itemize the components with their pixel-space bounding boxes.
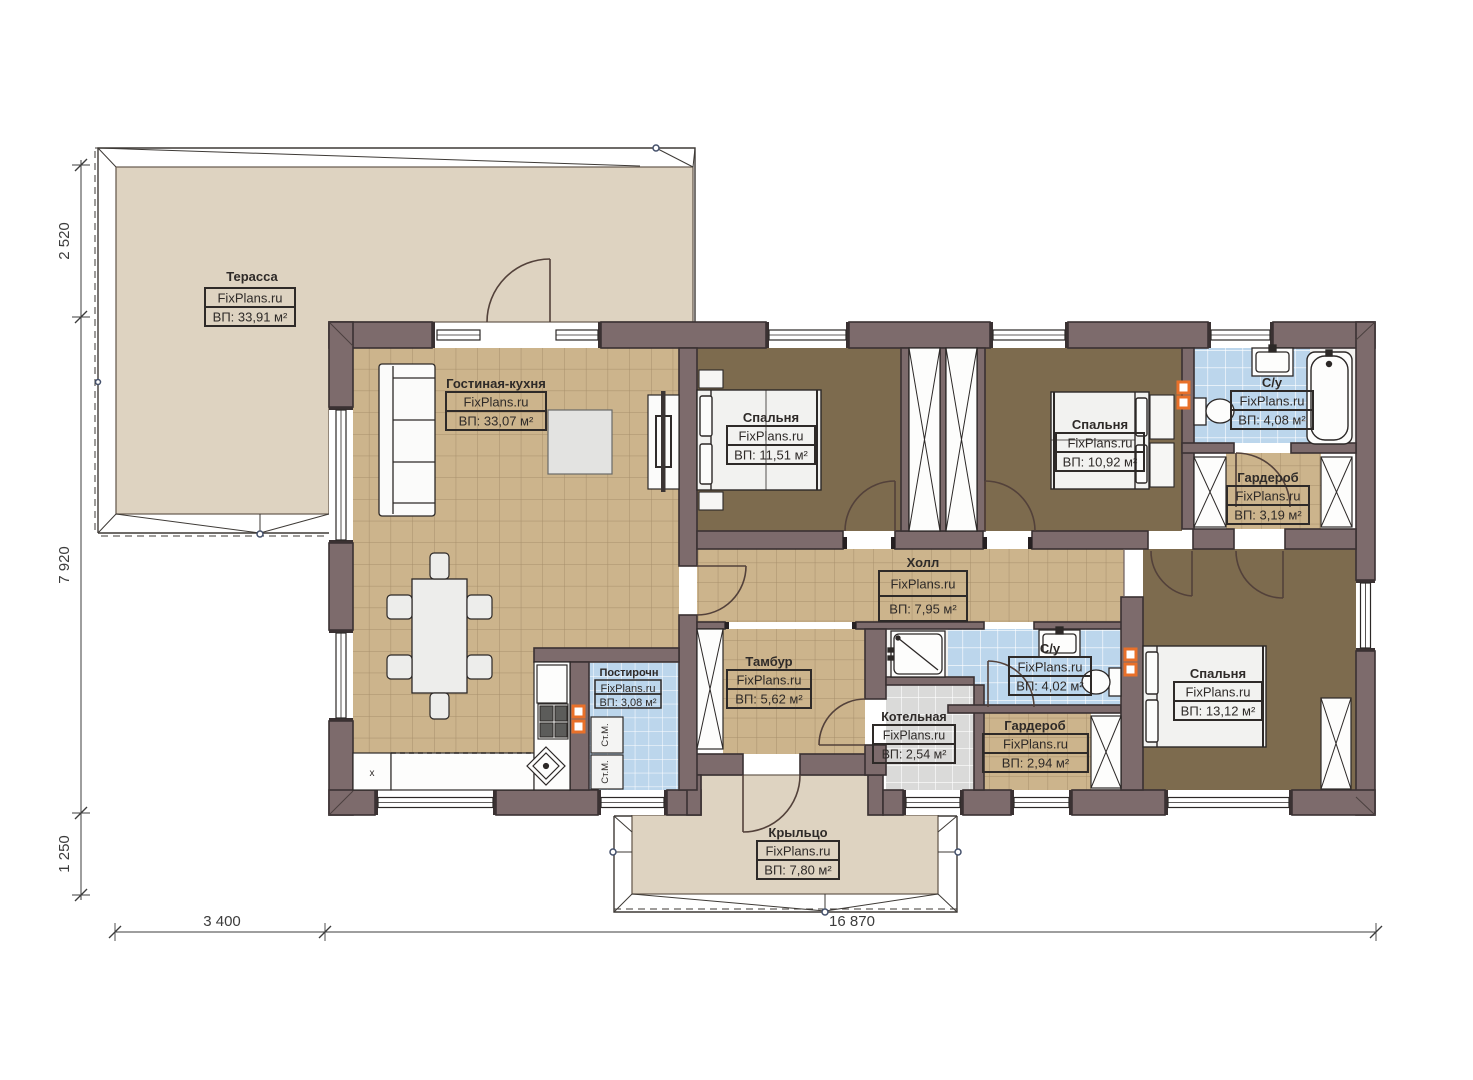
svg-text:ВП: 33,91 м²: ВП: 33,91 м² — [213, 310, 288, 325]
svg-text:FixPlans.ru: FixPlans.ru — [890, 577, 955, 592]
svg-text:ВП: 3,08 м²: ВП: 3,08 м² — [599, 697, 656, 709]
svg-text:Терасса: Терасса — [226, 269, 278, 284]
svg-text:ВП: 33,07 м²: ВП: 33,07 м² — [459, 414, 534, 429]
svg-text:FixPlans.ru: FixPlans.ru — [1003, 737, 1068, 752]
svg-text:Спальня: Спальня — [1190, 666, 1246, 681]
svg-text:Холл: Холл — [907, 555, 940, 570]
svg-text:ВП: 13,12 м²: ВП: 13,12 м² — [1181, 704, 1256, 719]
svg-text:С/у: С/у — [1040, 641, 1061, 656]
svg-text:Спальня: Спальня — [743, 410, 799, 425]
svg-text:FixPlans.ru: FixPlans.ru — [1017, 660, 1082, 675]
svg-text:FixPlans.ru: FixPlans.ru — [736, 673, 801, 688]
svg-text:7 920: 7 920 — [56, 546, 73, 584]
svg-text:FixPlans.ru: FixPlans.ru — [738, 429, 803, 444]
svg-text:FixPlans.ru: FixPlans.ru — [1239, 394, 1304, 409]
svg-text:FixPlans.ru: FixPlans.ru — [1235, 489, 1300, 504]
svg-text:ВП: 3,19 м²: ВП: 3,19 м² — [1234, 508, 1302, 523]
svg-text:Постирочн: Постирочн — [600, 667, 659, 679]
svg-text:FixPlans.ru: FixPlans.ru — [600, 683, 655, 695]
svg-text:16 870: 16 870 — [829, 913, 875, 930]
svg-text:ВП: 2,94 м²: ВП: 2,94 м² — [1002, 756, 1070, 771]
svg-text:Ст.М.: Ст.М. — [600, 760, 611, 783]
svg-text:Гостиная-кухня: Гостиная-кухня — [446, 376, 546, 391]
svg-text:Гардероб: Гардероб — [1004, 718, 1065, 733]
svg-text:FixPlans.ru: FixPlans.ru — [1185, 685, 1250, 700]
svg-text:ВП: 2,54 м²: ВП: 2,54 м² — [882, 748, 947, 762]
svg-text:Гардероб: Гардероб — [1237, 470, 1298, 485]
svg-text:Спальня: Спальня — [1072, 417, 1128, 432]
svg-text:ВП: 4,02 м²: ВП: 4,02 м² — [1016, 679, 1084, 694]
svg-text:Котельная: Котельная — [881, 710, 946, 724]
svg-text:Ст.М.: Ст.М. — [600, 723, 611, 746]
svg-text:3 400: 3 400 — [203, 913, 241, 930]
svg-text:ВП: 10,92 м²: ВП: 10,92 м² — [1063, 455, 1138, 470]
svg-text:ВП: 11,51 м²: ВП: 11,51 м² — [734, 448, 808, 463]
svg-text:FixPlans.ru: FixPlans.ru — [883, 729, 946, 743]
svg-text:FixPlans.ru: FixPlans.ru — [217, 291, 282, 306]
svg-text:ВП: 7,80 м²: ВП: 7,80 м² — [764, 863, 832, 878]
svg-text:Крыльцо: Крыльцо — [768, 825, 827, 840]
svg-text:ВП: 4,08 м²: ВП: 4,08 м² — [1238, 413, 1306, 428]
svg-text:FixPlans.ru: FixPlans.ru — [765, 844, 830, 859]
svg-text:ВП: 7,95 м²: ВП: 7,95 м² — [889, 602, 957, 617]
svg-text:Тамбур: Тамбур — [745, 654, 792, 669]
svg-text:ВП: 5,62 м²: ВП: 5,62 м² — [735, 692, 803, 707]
svg-text:1 250: 1 250 — [56, 835, 73, 873]
svg-text:x: x — [370, 768, 375, 779]
svg-text:2 520: 2 520 — [56, 222, 73, 260]
svg-text:С/у: С/у — [1262, 375, 1283, 390]
svg-text:FixPlans.ru: FixPlans.ru — [463, 395, 528, 410]
svg-text:FixPlans.ru: FixPlans.ru — [1067, 436, 1132, 451]
